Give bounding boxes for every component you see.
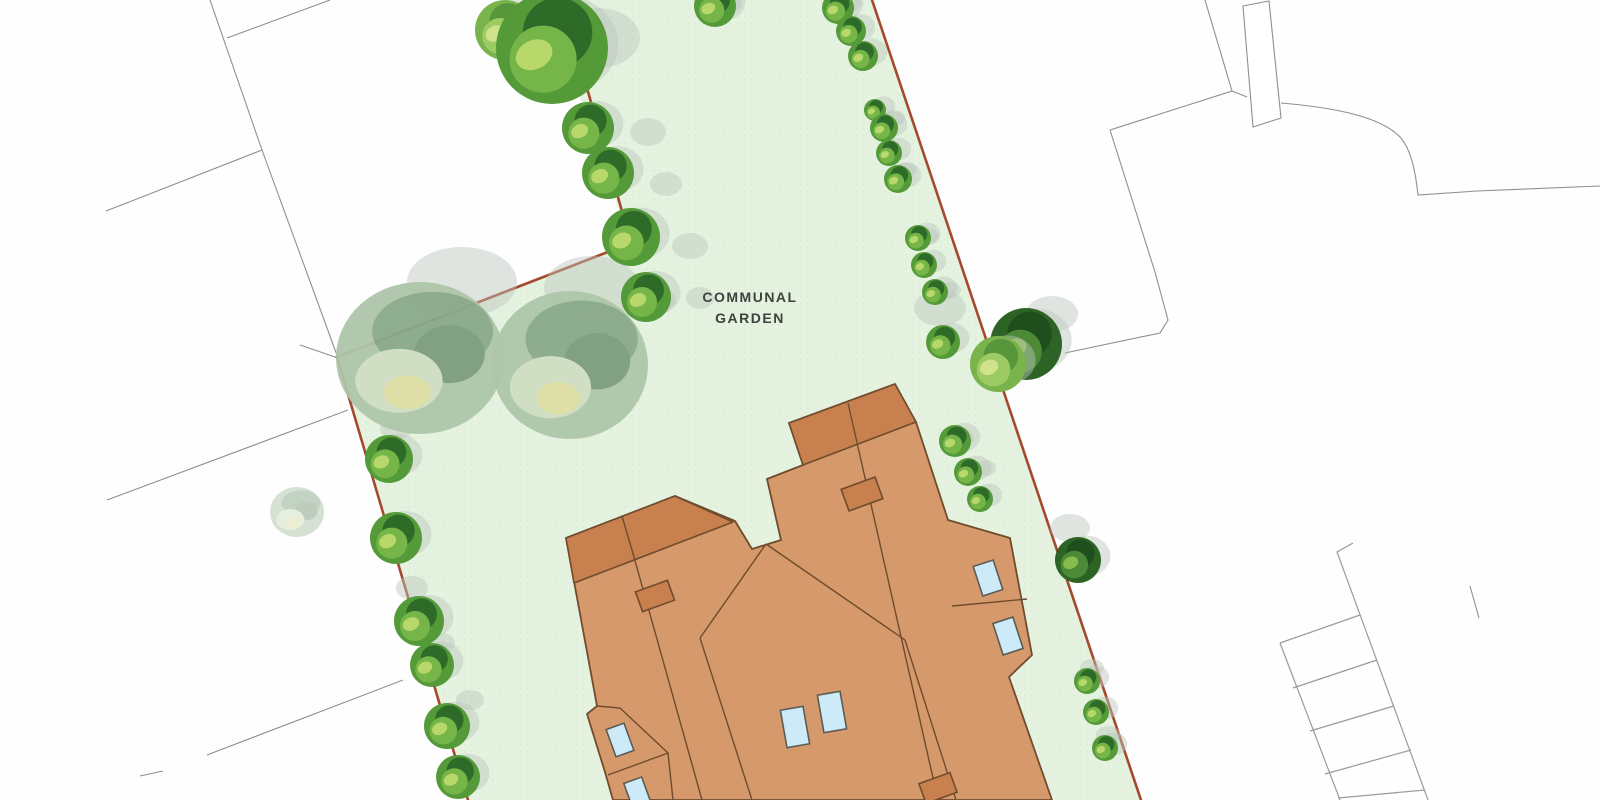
plot-line: [1470, 586, 1479, 618]
parking-bay-line: [1280, 643, 1340, 800]
plot-line: [1232, 91, 1247, 97]
road-edge-curve: [1281, 103, 1600, 195]
garden-label-line2: GARDEN: [715, 310, 785, 326]
plot-line: [106, 150, 262, 211]
tree: [1055, 536, 1110, 583]
plot-line: [227, 0, 330, 38]
parking-bay-line: [1280, 615, 1360, 643]
plot-line: [1065, 130, 1168, 353]
parking-bay-line: [1310, 706, 1394, 731]
plot-line: [207, 680, 403, 755]
parking-bay-line: [1338, 790, 1425, 798]
canopy-shadow: [672, 233, 708, 259]
plot-line: [300, 345, 338, 358]
plot-line: [107, 410, 348, 500]
canopy-shadow: [650, 172, 682, 196]
parking-bay-line: [1293, 660, 1377, 688]
site-plan-page: COMMUNAL GARDEN: [0, 0, 1600, 800]
parking-bay-line: [1337, 543, 1428, 800]
canopy-tree: [270, 487, 324, 537]
outbuilding-footprint: [1243, 1, 1281, 127]
site-plan-canvas: COMMUNAL GARDEN: [0, 0, 1600, 800]
canopy-tree: [336, 282, 504, 434]
plot-line: [140, 771, 163, 776]
canopy-tree: [492, 291, 648, 439]
parking-bays: [1280, 543, 1428, 800]
canopy-shadow: [630, 118, 666, 146]
garden-label-line1: COMMUNAL: [702, 289, 797, 305]
parking-bay-line: [1325, 750, 1411, 774]
plot-line: [1110, 0, 1232, 130]
tree: [970, 335, 1036, 392]
plot-line: [210, 0, 338, 358]
